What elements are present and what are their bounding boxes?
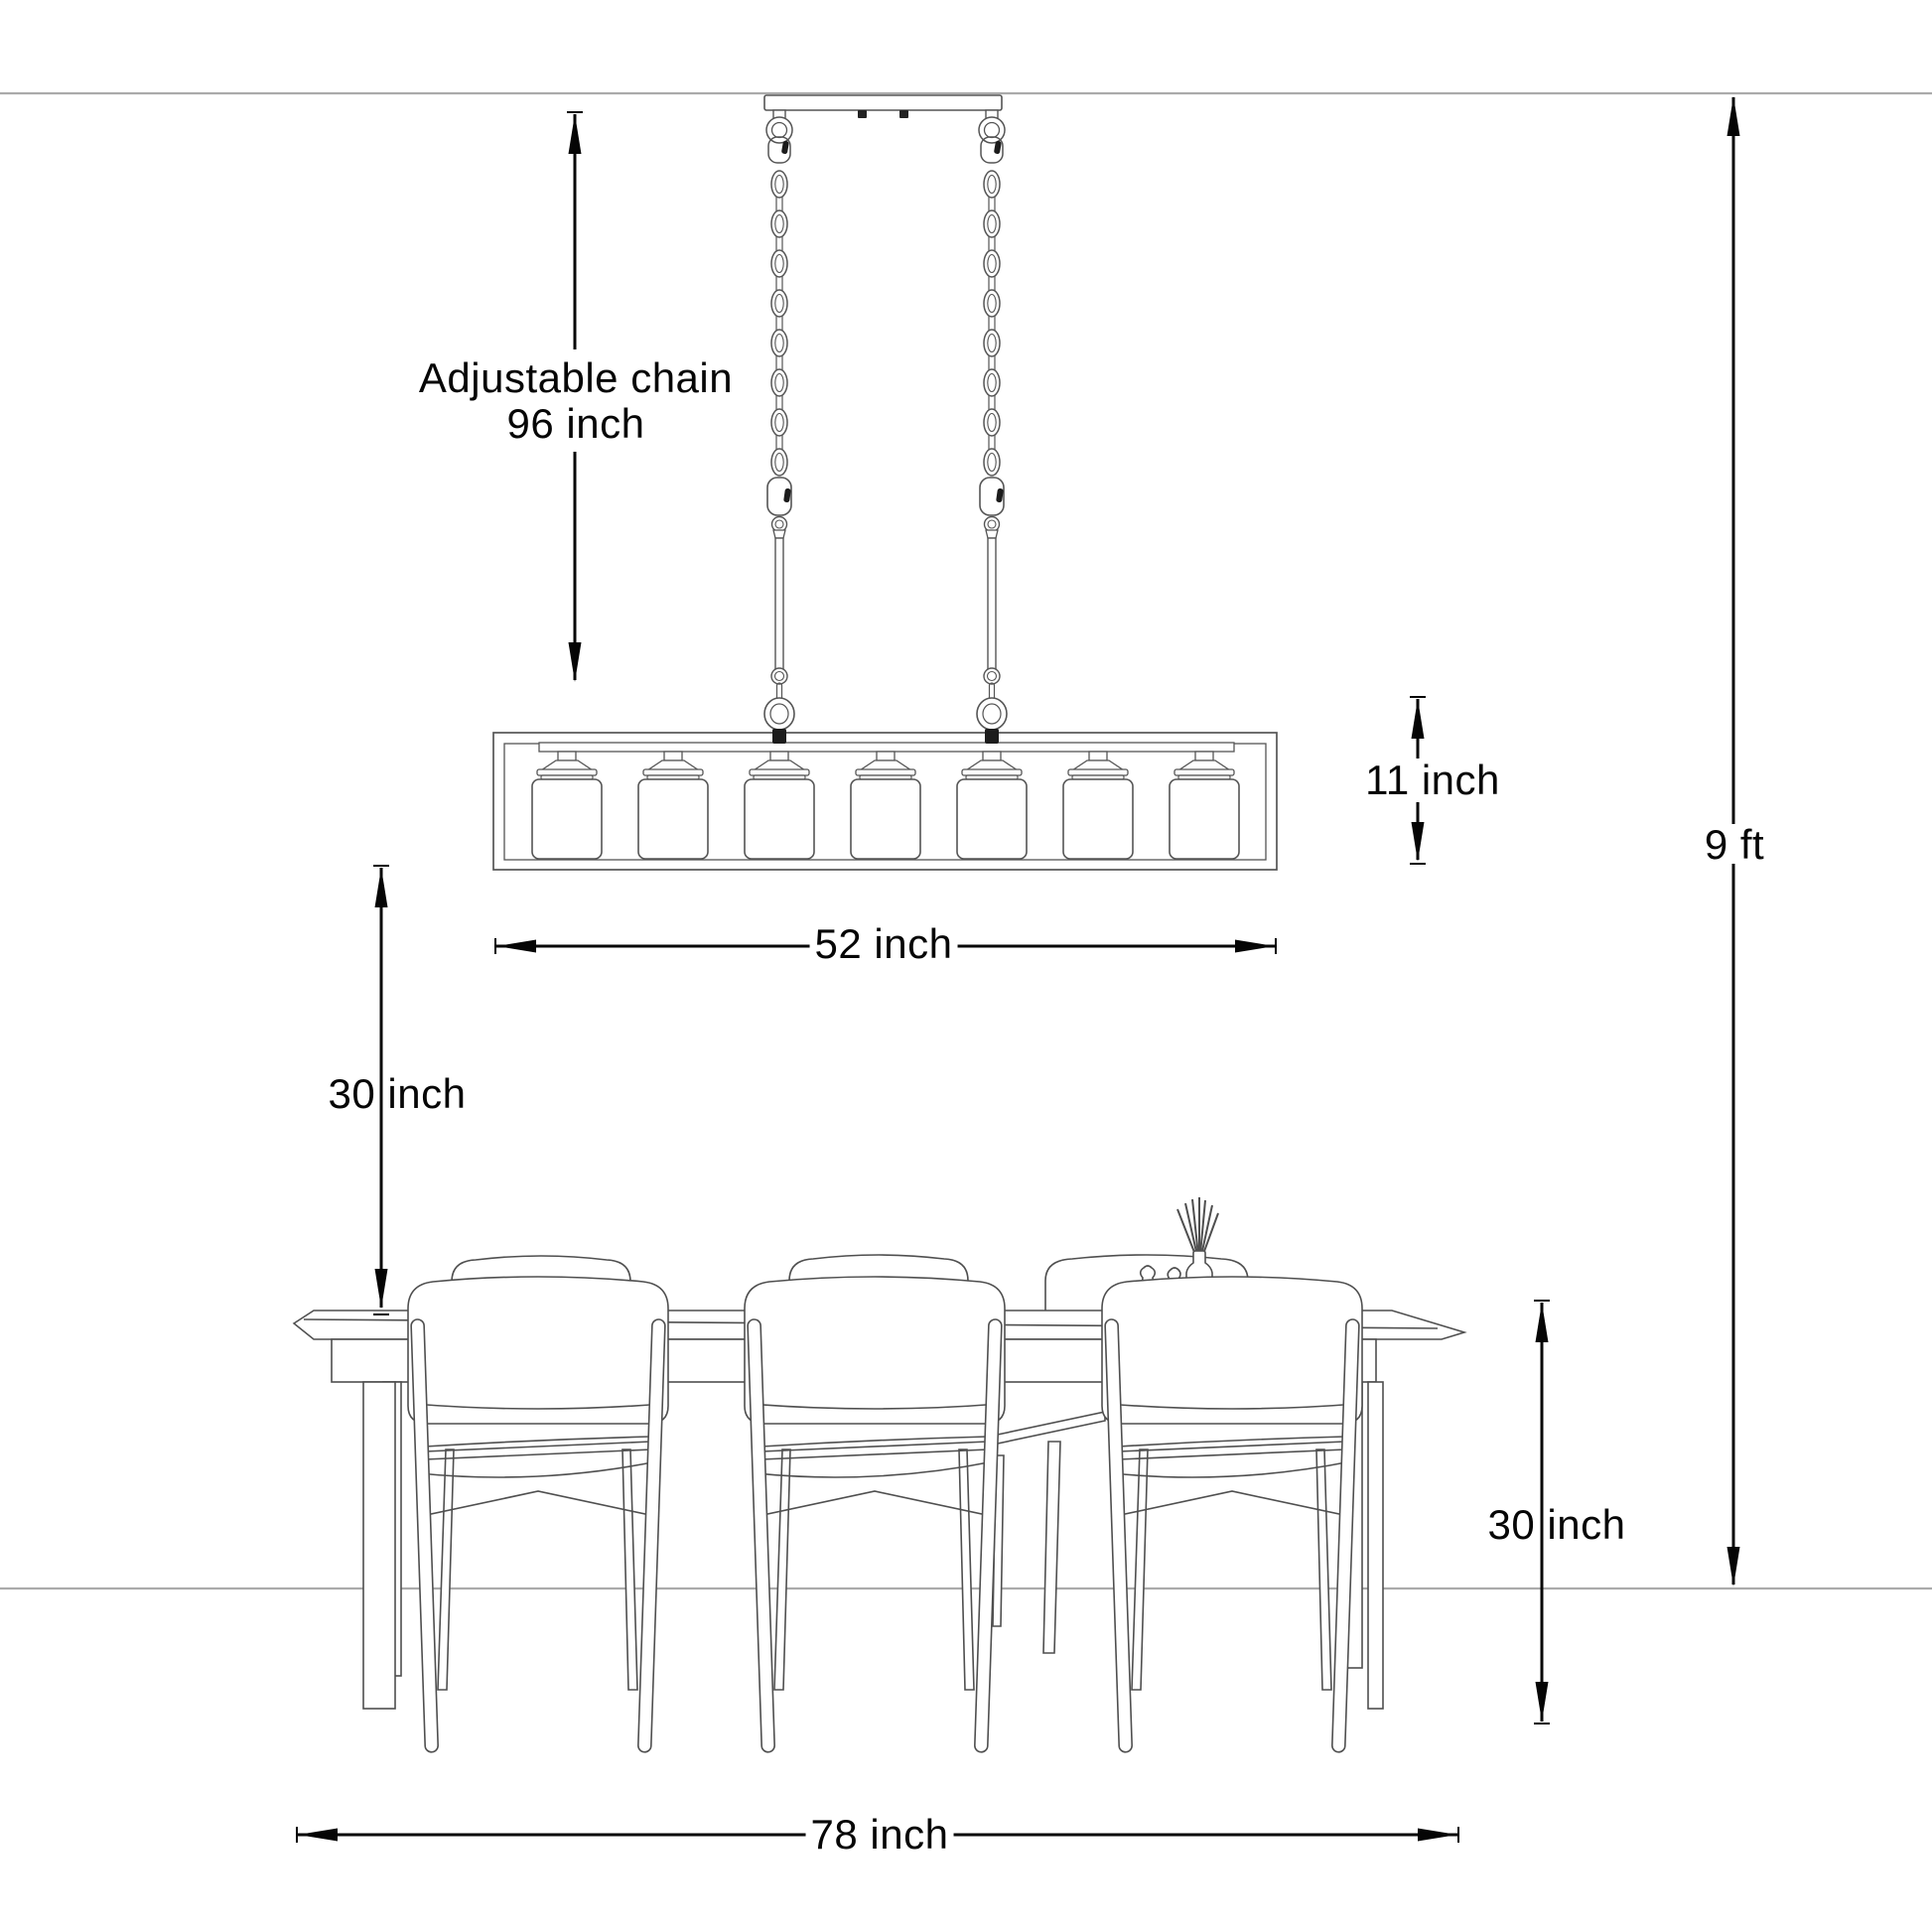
chair-left: [408, 1277, 668, 1752]
adjustable-chain-label-line2: 96 inch: [419, 401, 733, 447]
table-leg: [1368, 1382, 1383, 1709]
fixture-width-label: 52 inch: [810, 921, 958, 967]
light-rail: [539, 743, 1234, 752]
canopy-screw: [858, 110, 867, 118]
chandelier: [493, 95, 1277, 870]
ceiling-canopy: [764, 95, 1002, 118]
reed-diffuser: [1141, 1197, 1218, 1288]
diagram-page: Adjustable chain 96 inch 11 inch 52 inch…: [0, 0, 1932, 1932]
chair-right: [1102, 1277, 1362, 1752]
table-leg: [363, 1382, 395, 1709]
fixture-height-label: 11 inch: [1365, 758, 1500, 803]
ceiling-height-label: 9 ft: [1705, 822, 1764, 868]
table-height-label: 30 inch: [1488, 1502, 1626, 1548]
far-chair-right: [993, 1412, 1105, 1653]
canopy-screw: [899, 110, 908, 118]
clearance-above-table-label: 30 inch: [329, 1071, 467, 1117]
adjustable-chain-label: Adjustable chain 96 inch: [419, 355, 733, 447]
dining-set: [294, 1197, 1464, 1752]
hanging-chain-left: [764, 110, 794, 744]
adjustable-chain-label-line1: Adjustable chain: [419, 355, 733, 401]
hanging-chain-right: [977, 110, 1007, 744]
table-length-label: 78 inch: [806, 1812, 954, 1858]
chair-middle: [745, 1277, 1005, 1752]
diagram-canvas: [0, 0, 1932, 1932]
